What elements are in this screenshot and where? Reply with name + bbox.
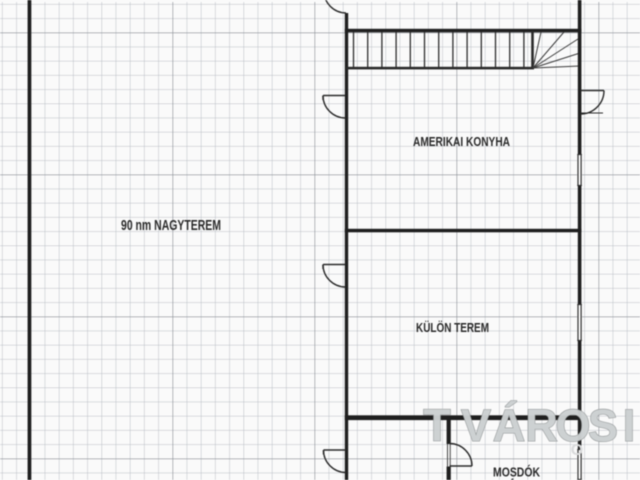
svg-text:Á: Á — [493, 400, 526, 451]
svg-text:S: S — [588, 400, 618, 451]
svg-text:R: R — [525, 400, 558, 451]
svg-text:O: O — [571, 442, 583, 459]
svg-text:KÜLÖN TEREM: KÜLÖN TEREM — [416, 320, 489, 335]
svg-text:AMERIKAI KONYHA: AMERIKAI KONYHA — [413, 134, 510, 149]
svg-text:T: T — [423, 400, 451, 451]
svg-text:V: V — [461, 400, 491, 451]
svg-text:90 nm NAGYTEREM: 90 nm NAGYTEREM — [121, 218, 221, 234]
svg-text:I: I — [623, 400, 636, 451]
